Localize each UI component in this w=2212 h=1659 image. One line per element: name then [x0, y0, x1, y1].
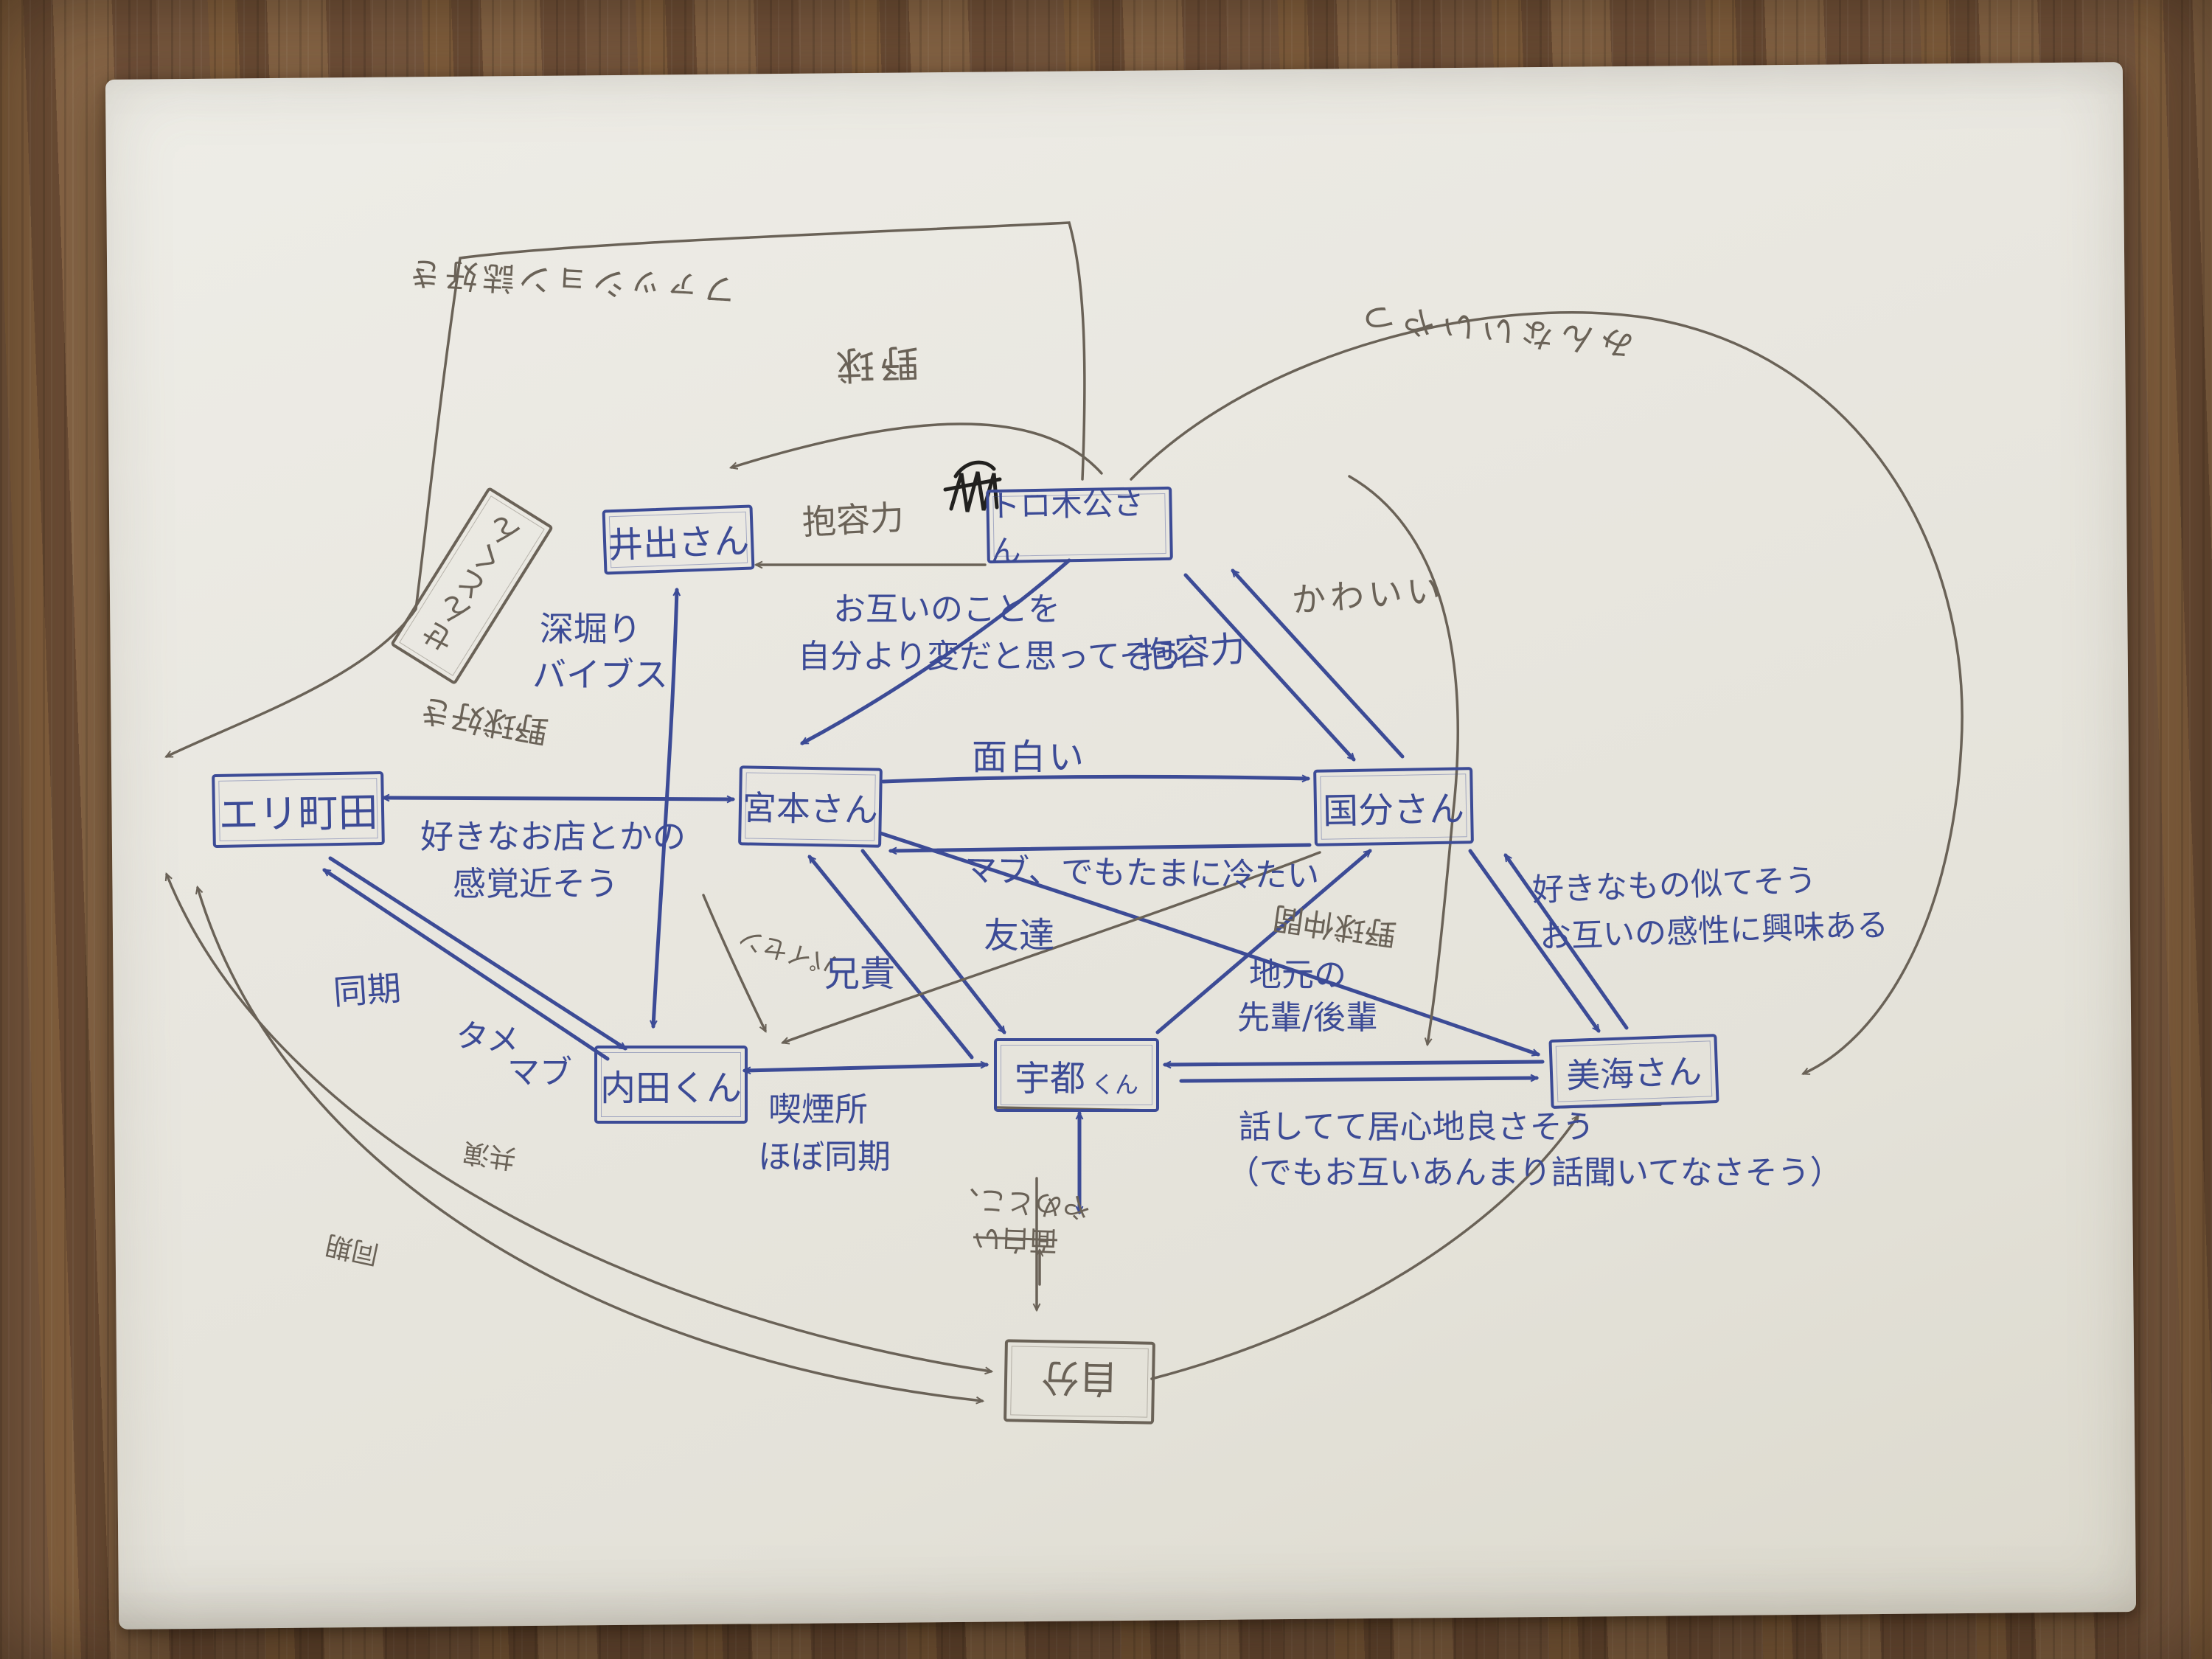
edge-label-mabu-tsumetai: マブ、でもたまに冷たい: [964, 849, 1320, 898]
edge-label-otagai-line1: お互いのことを: [833, 588, 1060, 630]
node-miyamoto-san: 宮本さん: [738, 765, 883, 847]
note-yakyu-upside-down: 野球: [829, 336, 919, 389]
node-toromatsu-san-label: トロ木公さん: [989, 479, 1170, 571]
edge-label-tomodachi: 友達: [984, 913, 1054, 959]
node-minami-san-label: 美海さん: [1565, 1045, 1703, 1098]
node-uto-kun-suffix: くん: [1091, 1066, 1138, 1100]
node-uchida-kun: 内田くん: [594, 1046, 748, 1124]
node-uto-kun: 宇都 くん: [994, 1038, 1159, 1112]
edge-label-sukinaomise-line2: 感覚近そう: [453, 863, 619, 906]
edge-label-fukabori-line1: 深堀り: [540, 608, 641, 652]
node-eri-machida-label: エリ町田: [218, 779, 378, 841]
edge-label-mabu: マブ: [507, 1051, 572, 1093]
note-omoshiroi-struck-upside-down: 面白い: [973, 1220, 1058, 1259]
edge-label-douki: 同期: [332, 967, 403, 1015]
note-kyouen-upside-down: 共演: [461, 1133, 518, 1175]
node-toromatsu-san: トロ木公さん: [986, 487, 1173, 563]
edge-label-houyouryoku-blue: 抱容力: [1138, 626, 1247, 679]
edge-label-igokochi-line1: 話してて居心地良さそう: [1239, 1106, 1595, 1148]
node-miyamoto-san-label: 宮本さん: [742, 781, 878, 832]
pencil-arrows: [167, 223, 1962, 1401]
node-ide-san: 井出さん: [602, 504, 755, 574]
node-jibun-label: 自分: [1040, 1354, 1118, 1411]
edge-label-fukabori-line2: バイブス: [532, 653, 668, 698]
node-kokubu-san-label: 国分さん: [1322, 779, 1464, 833]
node-minami-san: 美海さん: [1548, 1034, 1719, 1109]
node-eri-machida: エリ町田: [212, 771, 385, 848]
edge-label-kitsuenjo-line1: 喫煙所: [768, 1088, 868, 1132]
node-uchida-kun-label: 内田くん: [600, 1059, 742, 1110]
edge-label-igokochi-line2: （でもお互いあんまり話聞いてなさそう）: [1227, 1152, 1843, 1194]
edge-label-houyouryoku-pencil: 抱容力: [801, 495, 905, 545]
edge-label-aniki: 兄貴: [824, 951, 895, 997]
edge-label-otagai-line2: 自分より変だと思ってそう: [798, 636, 1184, 678]
photo-of-handdrawn-relationship-chart: エリ町田 井出さん トロ木公さん せんとくん 宮本さん 国分さん 内田くん 宇都…: [0, 0, 2212, 1659]
node-kokubu-san: 国分さん: [1313, 767, 1474, 846]
edge-label-jimoto-line1: 地元の: [1249, 954, 1346, 996]
edge-label-omoshiroi: 面白い: [972, 734, 1087, 780]
node-ide-san-label: 井出さん: [607, 512, 750, 568]
node-jibun-upside-down: 自分: [1004, 1339, 1155, 1425]
edge-label-kitsuenjo-line2: ほぼ同期: [758, 1135, 891, 1179]
node-uto-kun-label: 宇都: [1015, 1049, 1085, 1101]
edge-label-jimoto-line2: 先輩/後輩: [1237, 997, 1378, 1039]
edge-label-sukinaomise-line1: 好きなお店とかの: [420, 815, 686, 859]
